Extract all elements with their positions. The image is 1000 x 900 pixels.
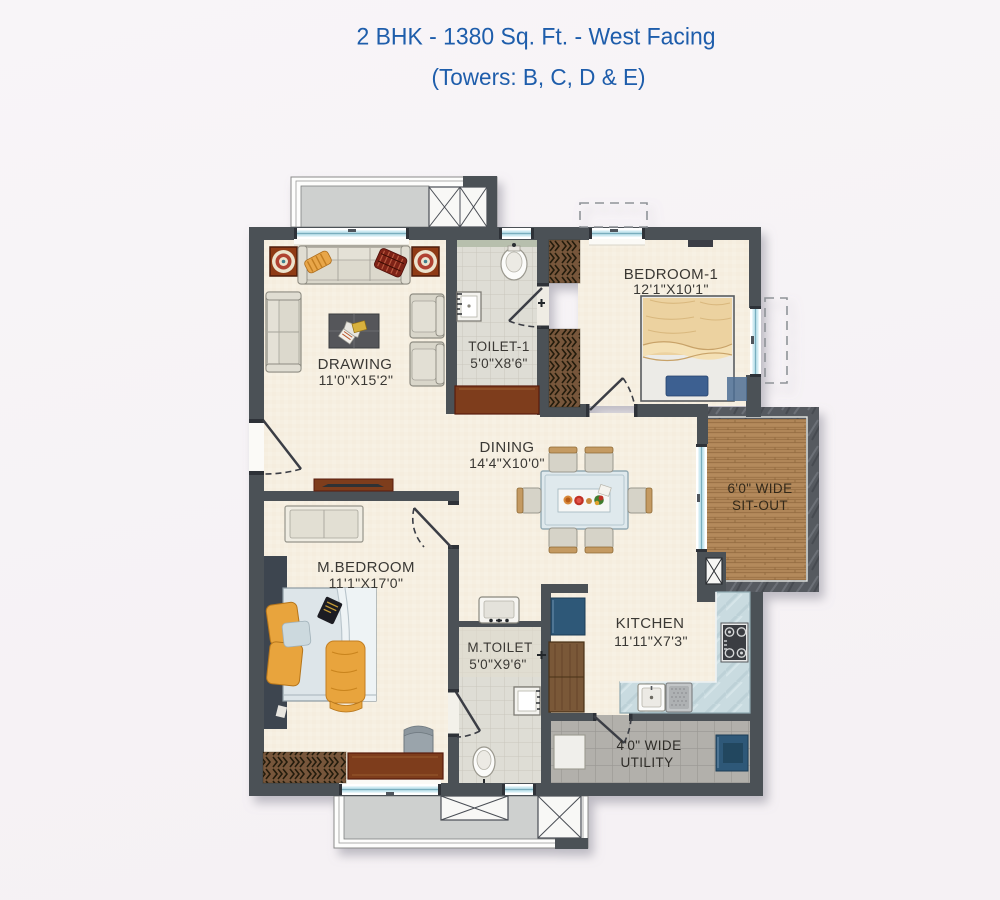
svg-text:14'4"X10'0": 14'4"X10'0" (469, 455, 545, 471)
svg-text:12'1"X10'1": 12'1"X10'1" (633, 281, 709, 297)
svg-text:M.BEDROOM: M.BEDROOM (317, 559, 415, 576)
svg-text:2 BHK - 1380 Sq. Ft. - West Fa: 2 BHK - 1380 Sq. Ft. - West Facing (357, 24, 716, 51)
svg-text:5'0"X9'6": 5'0"X9'6" (469, 657, 526, 672)
svg-text:DINING: DINING (480, 439, 535, 456)
svg-text:SIT-OUT: SIT-OUT (732, 498, 788, 513)
svg-text:KITCHEN: KITCHEN (616, 615, 685, 632)
svg-text:11'1"X17'0": 11'1"X17'0" (329, 575, 404, 591)
svg-text:4'0" WIDE: 4'0" WIDE (617, 738, 682, 753)
svg-text:11'0"X15'2": 11'0"X15'2" (319, 372, 394, 388)
svg-text:DRAWING: DRAWING (318, 356, 393, 373)
svg-text:6'0" WIDE: 6'0" WIDE (728, 481, 793, 496)
svg-text:TOILET-1: TOILET-1 (468, 339, 529, 354)
svg-text:UTILITY: UTILITY (620, 755, 673, 770)
svg-text:M.TOILET: M.TOILET (467, 640, 532, 655)
svg-text:11'11"X7'3": 11'11"X7'3" (614, 633, 688, 649)
svg-text:5'0"X8'6": 5'0"X8'6" (470, 356, 527, 371)
svg-text:(Towers: B, C, D & E): (Towers: B, C, D & E) (432, 64, 646, 90)
